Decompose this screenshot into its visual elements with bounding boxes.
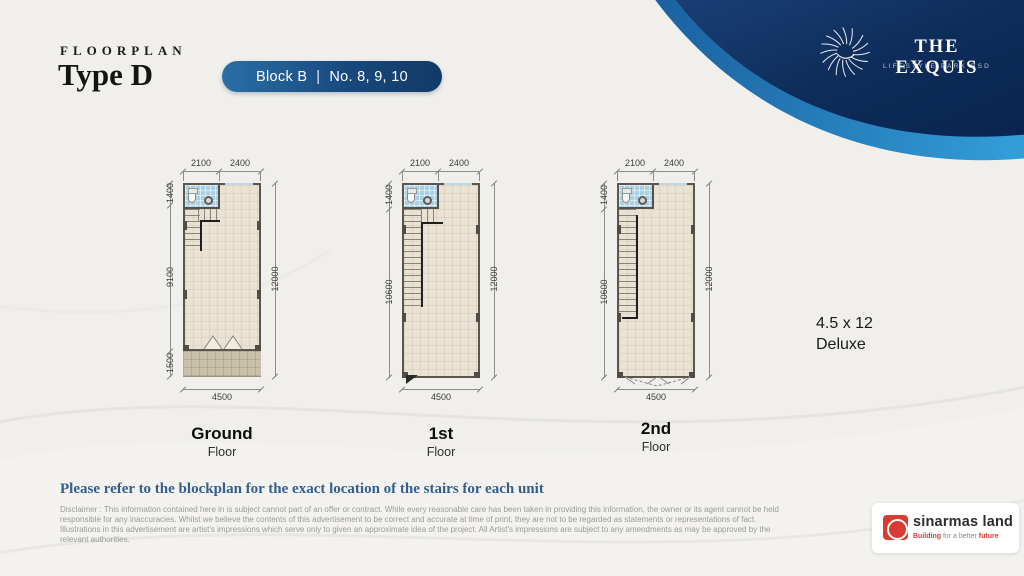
dim-right: 12000 — [270, 257, 280, 301]
window — [225, 183, 253, 185]
dim-bottom: 4500 — [636, 392, 676, 402]
toilet-icon — [622, 191, 630, 203]
window — [444, 183, 472, 185]
basin-icon — [638, 196, 647, 205]
floor-name: Ground — [160, 424, 284, 444]
floorplan-ground: 2100 2400 1400 9100 1500 12000 4500 — [158, 155, 298, 405]
stairs-run — [619, 209, 636, 317]
disclaimer-text: Disclaimer : This information contained … — [60, 505, 779, 545]
building-outline — [617, 183, 695, 378]
dim-bottom: 4500 — [202, 392, 242, 402]
dim-bottom: 4500 — [421, 392, 461, 402]
stairs-note: Please refer to the blockplan for the ex… — [60, 481, 544, 498]
building-outline — [402, 183, 480, 378]
disclaimer-line: Illustrations in this advertisement are … — [60, 525, 779, 535]
dim-side-bottom: 1500 — [165, 341, 175, 385]
disclaimer-line: Disclaimer : This information contained … — [60, 505, 779, 515]
dim-top-left: 2100 — [615, 158, 655, 168]
basin-icon — [423, 196, 432, 205]
toilet-icon — [188, 191, 196, 203]
badge-units-label: No. 8, 9, 10 — [329, 69, 408, 85]
dim-right: 12000 — [489, 257, 499, 301]
developer-logo-card: sinarmas land Building for a better futu… — [872, 503, 1019, 553]
stairs-winder — [421, 209, 439, 222]
bathroom — [185, 185, 220, 209]
dim-top-right: 2400 — [439, 158, 479, 168]
floor-name: 1st — [379, 424, 503, 444]
dim-side-top: 1400 — [599, 173, 609, 217]
floorplan-second: 2100 2400 1400 10600 12000 4500 — [592, 155, 732, 405]
disclaimer-line: relevant authorities. — [60, 535, 779, 545]
window — [659, 183, 687, 185]
tagline-mid: for a better — [941, 533, 979, 540]
carport — [183, 351, 261, 377]
disclaimer-line: responsible for any inaccuracies. Whilst… — [60, 515, 779, 525]
floor-label-second: 2nd Floor — [594, 419, 718, 454]
page-title: Type D — [58, 57, 153, 93]
unit-size-bracket-icon — [781, 317, 803, 339]
dim-line-bottom — [183, 389, 261, 390]
floor-sub: Floor — [379, 445, 503, 459]
developer-tagline: Building for a better future — [913, 533, 999, 540]
floor-name: 2nd — [594, 419, 718, 439]
brand-tagline: LIFESTYLE PARK BSD — [876, 63, 998, 70]
bathroom — [404, 185, 439, 209]
dim-top-left: 2100 — [400, 158, 440, 168]
block-badge: Block B | No. 8, 9, 10 — [222, 61, 442, 92]
door-swing — [406, 375, 420, 385]
floorplan-first: 2100 2400 1400 10600 12000 4500 — [377, 155, 517, 405]
dim-side-top: 1400 — [384, 173, 394, 217]
dim-side-mid: 10600 — [384, 270, 394, 314]
stairs-lower-run — [185, 209, 200, 251]
developer-name: sinarmas land — [913, 514, 1013, 530]
building-outline — [183, 183, 261, 351]
folding-door — [625, 376, 691, 388]
dim-top-right: 2400 — [220, 158, 260, 168]
floor-label-ground: Ground Floor — [160, 424, 284, 459]
tagline-bold-1: Building — [913, 533, 941, 540]
dim-side-top: 1400 — [165, 171, 175, 215]
basin-icon — [204, 196, 213, 205]
floor-label-first: 1st Floor — [379, 424, 503, 459]
double-door — [203, 335, 243, 350]
badge-divider: | — [316, 69, 320, 85]
stairs-run — [404, 209, 421, 307]
dim-line-top — [183, 171, 261, 172]
dim-top-left: 2100 — [181, 158, 221, 168]
floor-sub: Floor — [594, 440, 718, 454]
floor-sub: Floor — [160, 445, 284, 459]
dim-side-mid: 10600 — [599, 270, 609, 314]
bathroom — [619, 185, 654, 209]
legend-unit-type: Deluxe — [816, 336, 866, 354]
badge-block-label: Block B — [256, 69, 307, 85]
tagline-bold-2: future — [979, 533, 999, 540]
dim-side-mid: 9100 — [165, 255, 175, 299]
brand-name: THE EXQUIS — [876, 37, 998, 79]
toilet-icon — [407, 191, 415, 203]
dim-right: 12000 — [704, 257, 714, 301]
sinarmas-logo-icon — [883, 515, 908, 540]
dim-top-right: 2400 — [654, 158, 694, 168]
legend-unit-size: 4.5 x 12 — [816, 315, 873, 333]
